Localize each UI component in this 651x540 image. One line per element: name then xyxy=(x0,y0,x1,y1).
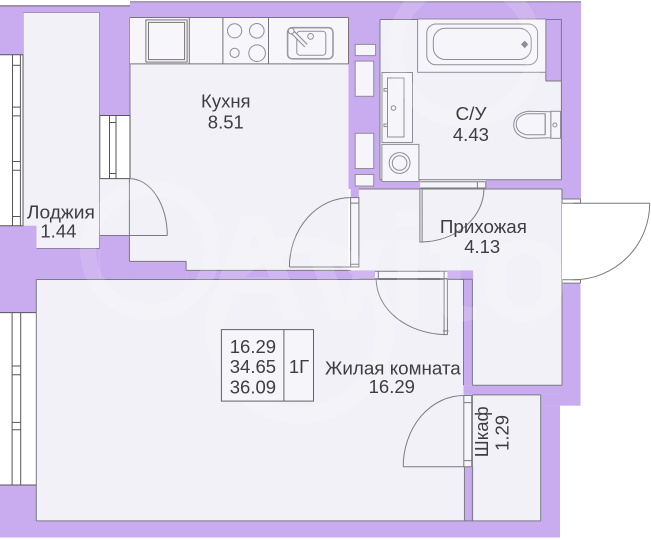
svg-text:36.09: 36.09 xyxy=(230,376,276,397)
svg-text:Прихожая: Прихожая xyxy=(440,216,527,237)
svg-text:Шкаф: Шкаф xyxy=(471,406,492,457)
svg-text:Лоджия: Лоджия xyxy=(27,202,95,223)
svg-text:16.29: 16.29 xyxy=(369,376,415,397)
svg-text:С/У: С/У xyxy=(456,103,487,124)
svg-text:1.44: 1.44 xyxy=(40,221,76,242)
svg-text:1.29: 1.29 xyxy=(492,415,513,451)
svg-text:4.13: 4.13 xyxy=(464,236,500,257)
svg-text:Кухня: Кухня xyxy=(201,91,251,112)
svg-text:34.65: 34.65 xyxy=(230,356,276,377)
svg-text:16.29: 16.29 xyxy=(230,336,276,357)
svg-text:8.51: 8.51 xyxy=(208,112,244,133)
svg-text:4.43: 4.43 xyxy=(453,124,489,145)
svg-text:Avito: Avito xyxy=(200,184,569,352)
svg-text:1Г: 1Г xyxy=(289,356,309,377)
